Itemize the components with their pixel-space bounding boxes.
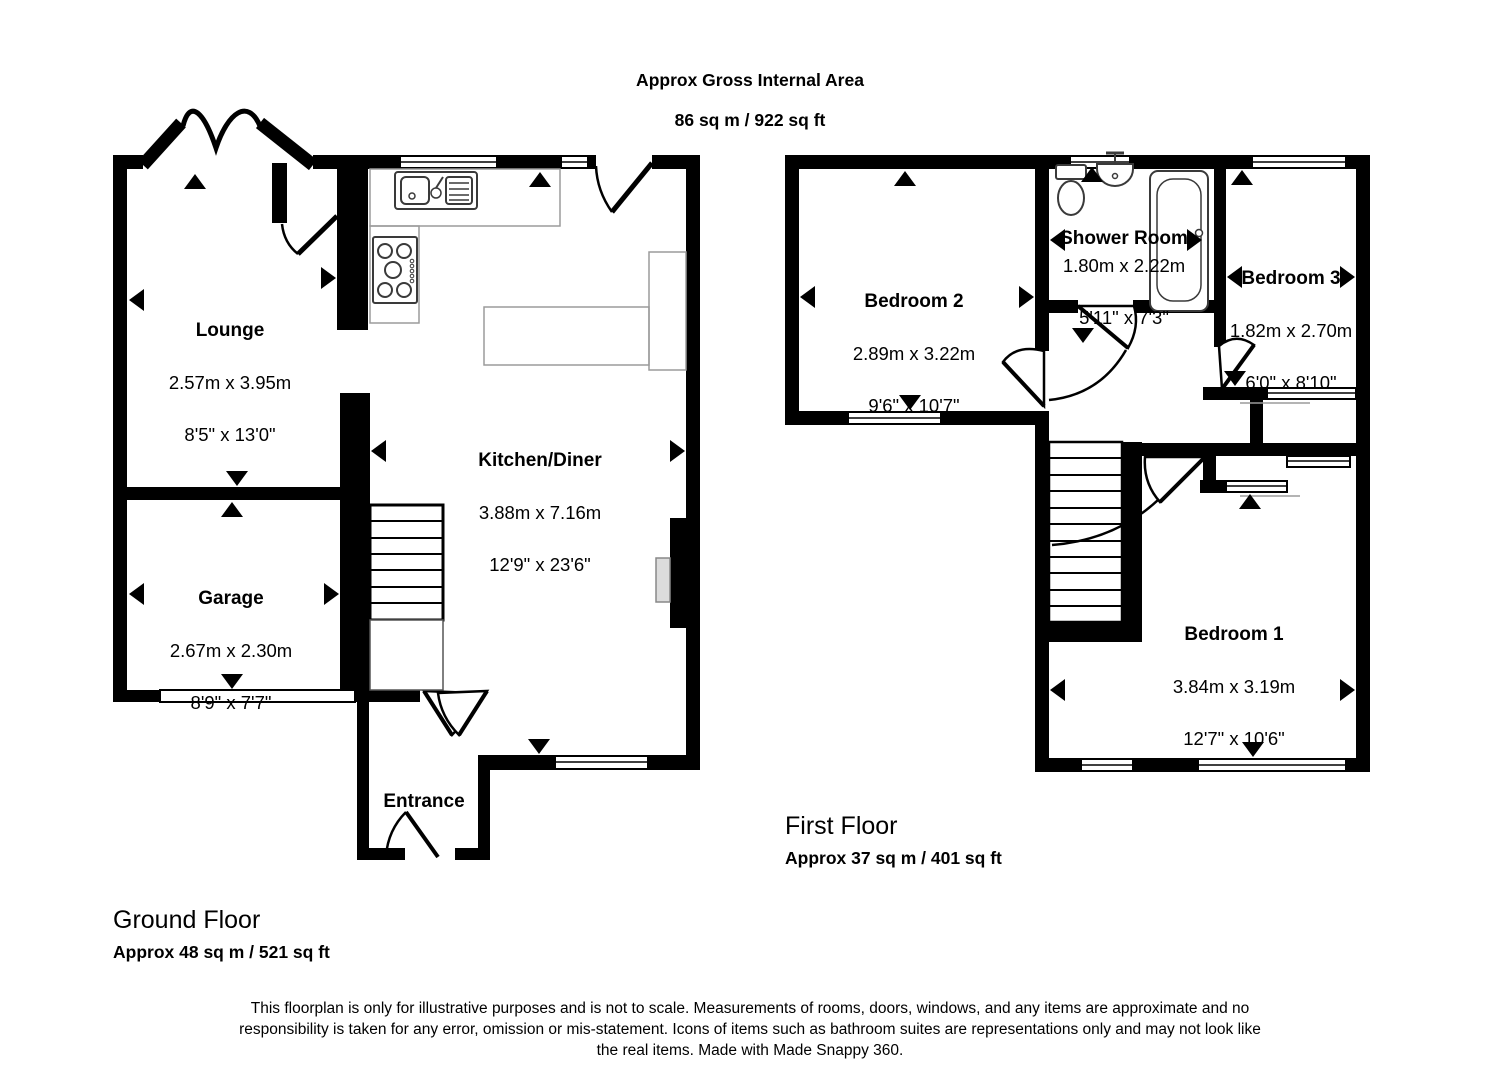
bedroom1-top-window-left: [1226, 481, 1300, 496]
kitchen-hob-icon: [373, 237, 417, 303]
landing-arc-1: [1049, 350, 1126, 400]
bedroom1-top-window-right: [1287, 456, 1350, 467]
entrance-double-doors: [424, 691, 487, 735]
first-floor-area: Approx 37 sq m / 401 sq ft: [785, 848, 1002, 869]
page-title-line1: Approx Gross Internal Area: [636, 70, 864, 90]
room-label-bedroom-3: Bedroom 3 1.82m x 2.70m 6'0" x 8'10": [1230, 240, 1352, 422]
disclaimer-text: This floorplan is only for illustrative …: [236, 998, 1264, 1061]
room-label-entrance: Entrance: [383, 763, 464, 841]
bedroom2-door: [1003, 349, 1044, 406]
kitchen-top-window-small: [561, 156, 588, 168]
room-label-bedroom-2: Bedroom 2 2.89m x 3.22m 9'6" x 10'7": [853, 263, 975, 445]
page-title-line2: 86 sq m / 922 sq ft: [636, 110, 864, 130]
room-label-garage: Garage 2.67m x 2.30m 8'9" x 7'7": [170, 560, 292, 742]
kitchen-top-window-large: [400, 156, 497, 168]
lounge-door: [282, 216, 337, 254]
bedroom1-door: [1145, 457, 1205, 502]
room-label-lounge: Lounge 2.57m x 3.95m 8'5" x 13'0": [169, 292, 291, 474]
room-label-bedroom-1: Bedroom 1 3.84m x 3.19m 12'7" x 10'6": [1173, 596, 1295, 778]
ground-floor-plan: [113, 111, 700, 860]
floorplan-page: Approx Gross Internal Area 86 sq m / 922…: [0, 0, 1502, 1080]
ground-floor-area: Approx 48 sq m / 521 sq ft: [113, 942, 330, 963]
bedroom1-bottom-window-left: [1081, 759, 1133, 771]
kitchen-sink-icon: [395, 172, 477, 209]
bay-window: [143, 111, 313, 165]
kitchen-bottom-window: [555, 756, 648, 769]
room-label-kitchen-diner: Kitchen/Diner 3.88m x 7.16m 12'9" x 23'6…: [478, 422, 602, 604]
page-title: Approx Gross Internal Area 86 sq m / 922…: [636, 50, 864, 150]
room-label-shower-room: Shower Room 1.80m x 2.22m 5'11" x 7'3": [1059, 200, 1189, 357]
fireplace-icon: [656, 558, 670, 602]
kitchen-back-door: [596, 163, 652, 212]
bedroom3-top-window: [1252, 156, 1346, 168]
ground-floor-stairs: [370, 505, 443, 690]
ground-floor-caption: Ground Floor: [113, 906, 260, 935]
first-floor-caption: First Floor: [785, 812, 898, 841]
